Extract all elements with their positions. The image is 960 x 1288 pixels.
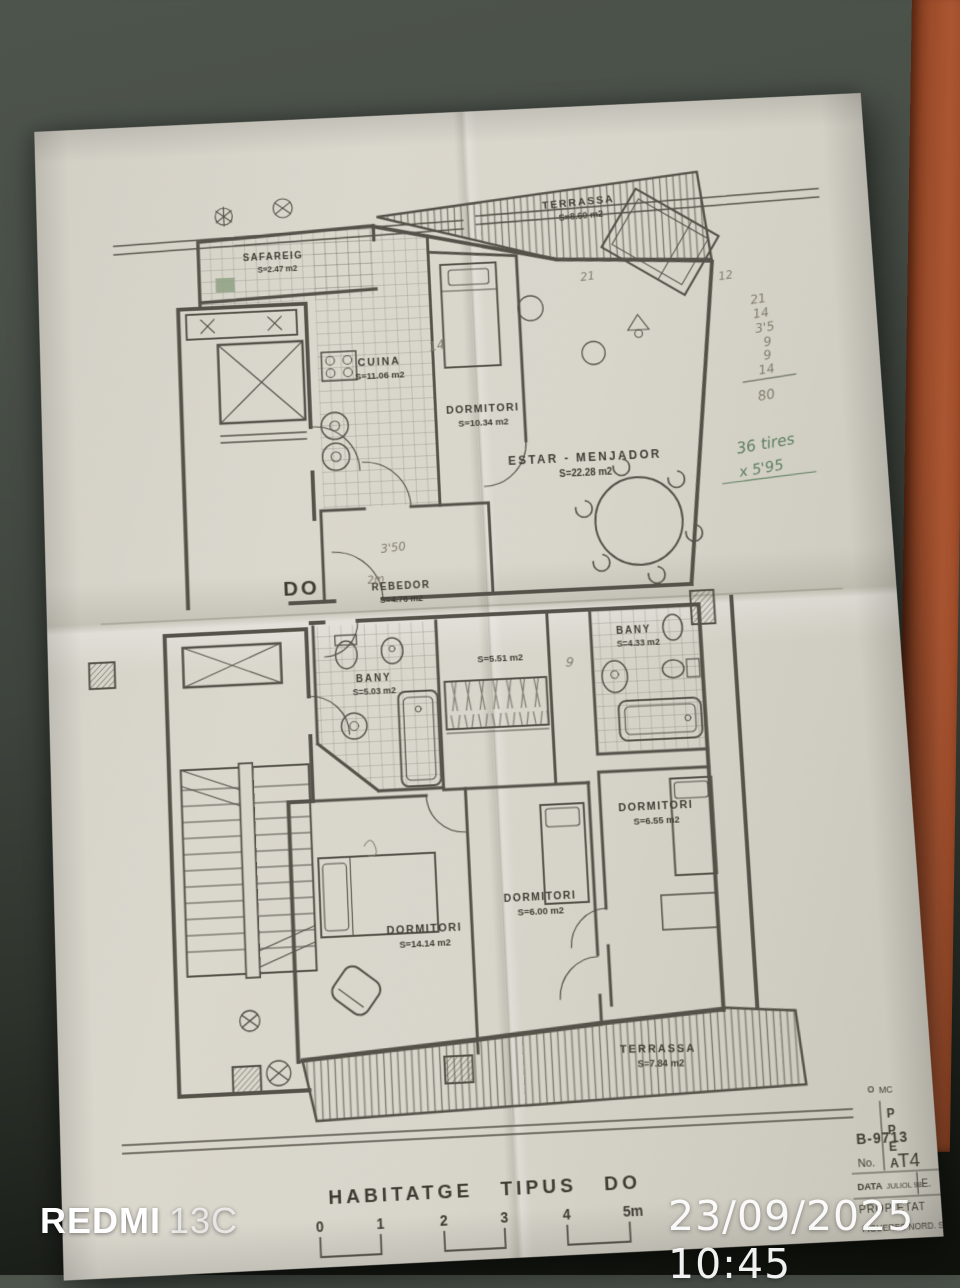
- unit-label-do: DO: [283, 577, 320, 601]
- floor-plan-drawing: TERRASSA S=8.60 m2 SAFAREIG S=2.47 m2 CU…: [34, 93, 943, 1281]
- room-area-551: S=5.51 m2: [477, 652, 523, 664]
- title-block-no-label: No.: [857, 1157, 875, 1171]
- desk-icon: [661, 893, 719, 930]
- door-arc: [558, 957, 600, 1000]
- plant-icon: [581, 341, 605, 365]
- title-block-letter-p1: P: [886, 1107, 895, 1121]
- scale-bar-labels: 0 1 2 3 4 5m: [316, 1203, 644, 1236]
- tally-6: 14: [757, 361, 775, 378]
- room-label-dormitori-1414: DORMITORI: [386, 921, 462, 937]
- sheet-border-bottom: [123, 1109, 853, 1154]
- room-terrassa-bottom: [301, 1004, 807, 1122]
- pencil-mark-14: 14: [428, 337, 446, 354]
- tally-3: 3'5: [754, 318, 776, 335]
- room-bany-503: [313, 621, 444, 794]
- bed-icon: [540, 803, 589, 904]
- room-dormitori-top: [428, 248, 528, 488]
- watermark-brand: REDMI: [40, 1200, 161, 1241]
- plant-icon: [215, 207, 233, 227]
- floor-plan-paper: TERRASSA S=8.60 m2 SAFAREIG S=2.47 m2 CU…: [34, 93, 943, 1281]
- handwritten-tally: 21 14 3'5 9 9 14 80: [737, 289, 798, 405]
- room-label-bany-503: BANY: [356, 672, 392, 685]
- pencil-mark-2m: 2m: [367, 572, 386, 587]
- pillar: [89, 662, 115, 689]
- pencil-mark-21: 21: [579, 268, 595, 283]
- green-note-line2: x 5'95: [737, 457, 785, 481]
- plan-linework: [76, 164, 943, 1268]
- camera-timestamp: 23/09/2025 10:45: [668, 1192, 960, 1288]
- pencil-mark-9: 9: [565, 654, 575, 670]
- plant-icon: [517, 295, 543, 321]
- scale-0: 0: [316, 1219, 324, 1236]
- camera-watermark: REDMI13C: [40, 1200, 238, 1242]
- door-arc: [426, 794, 465, 834]
- ceiling-lamp-icon: [627, 314, 649, 338]
- title-block-date-label: DATA: [857, 1180, 883, 1192]
- title-block-ref: B-9713: [856, 1129, 909, 1148]
- room-551: [436, 610, 589, 790]
- room-label-estar: ESTAR - MENJADOR: [508, 448, 662, 468]
- title-block-e-label: E.: [921, 1178, 931, 1190]
- room-area-dormitori-600: S=6.00 m2: [517, 905, 564, 918]
- bed-icon: [440, 262, 501, 367]
- scale-5m: 5m: [622, 1203, 643, 1220]
- fan-icon: [273, 198, 293, 218]
- title-block-date-value: JULIOL 98: [886, 1180, 922, 1191]
- stairs-icon: [181, 760, 317, 981]
- title-block-mc: MC: [878, 1084, 893, 1095]
- title-block-no-value: T4: [897, 1148, 921, 1172]
- scale-1: 1: [376, 1216, 385, 1233]
- wardrobe-icon: [445, 677, 549, 734]
- room-area-dormitori-top: S=10.34 m2: [458, 416, 509, 428]
- pillar: [232, 1066, 261, 1094]
- room-label-dormitori-655: DORMITORI: [618, 798, 694, 814]
- green-note-line1: 36 tires: [735, 430, 796, 458]
- pencil-scribble: [364, 840, 377, 856]
- room-area-rebedor: S=4.76 m2: [380, 593, 424, 605]
- tally-total: 80: [757, 386, 777, 404]
- room-label-cuina: CUINA: [357, 355, 401, 369]
- watermark-model: 13C: [169, 1200, 238, 1241]
- room-area-bany-433: S=4.33 m2: [616, 637, 660, 649]
- scale-2: 2: [440, 1213, 449, 1230]
- room-label-terrassa-bottom: TERRASSA: [620, 1042, 697, 1056]
- pencil-mark-350: 3'50: [380, 539, 407, 556]
- room-area-dormitori-1414: S=14.14 m2: [399, 937, 451, 950]
- room-area-terrassa-bottom: S=7.84 m2: [637, 1058, 684, 1069]
- vent-box-icon: [186, 310, 297, 340]
- room-label-dormitori-top: DORMITORI: [446, 401, 520, 416]
- scale-4: 4: [562, 1206, 571, 1223]
- handwritten-green-note: 36 tires x 5'95: [719, 429, 817, 484]
- scale-bar: [320, 1223, 630, 1257]
- green-highlight-mark: [215, 278, 235, 293]
- room-area-estar: S=22.28 m2: [559, 466, 613, 480]
- sheet-title: HABITATGE TIPUS DO: [328, 1170, 642, 1208]
- pencil-mark-12: 12: [717, 268, 734, 283]
- scale-3: 3: [500, 1209, 509, 1226]
- door-arc: [569, 908, 608, 947]
- armchair-icon: [328, 962, 384, 1019]
- room-area-bany-503: S=5.03 m2: [352, 685, 396, 697]
- room-label-bany-433: BANY: [616, 624, 652, 637]
